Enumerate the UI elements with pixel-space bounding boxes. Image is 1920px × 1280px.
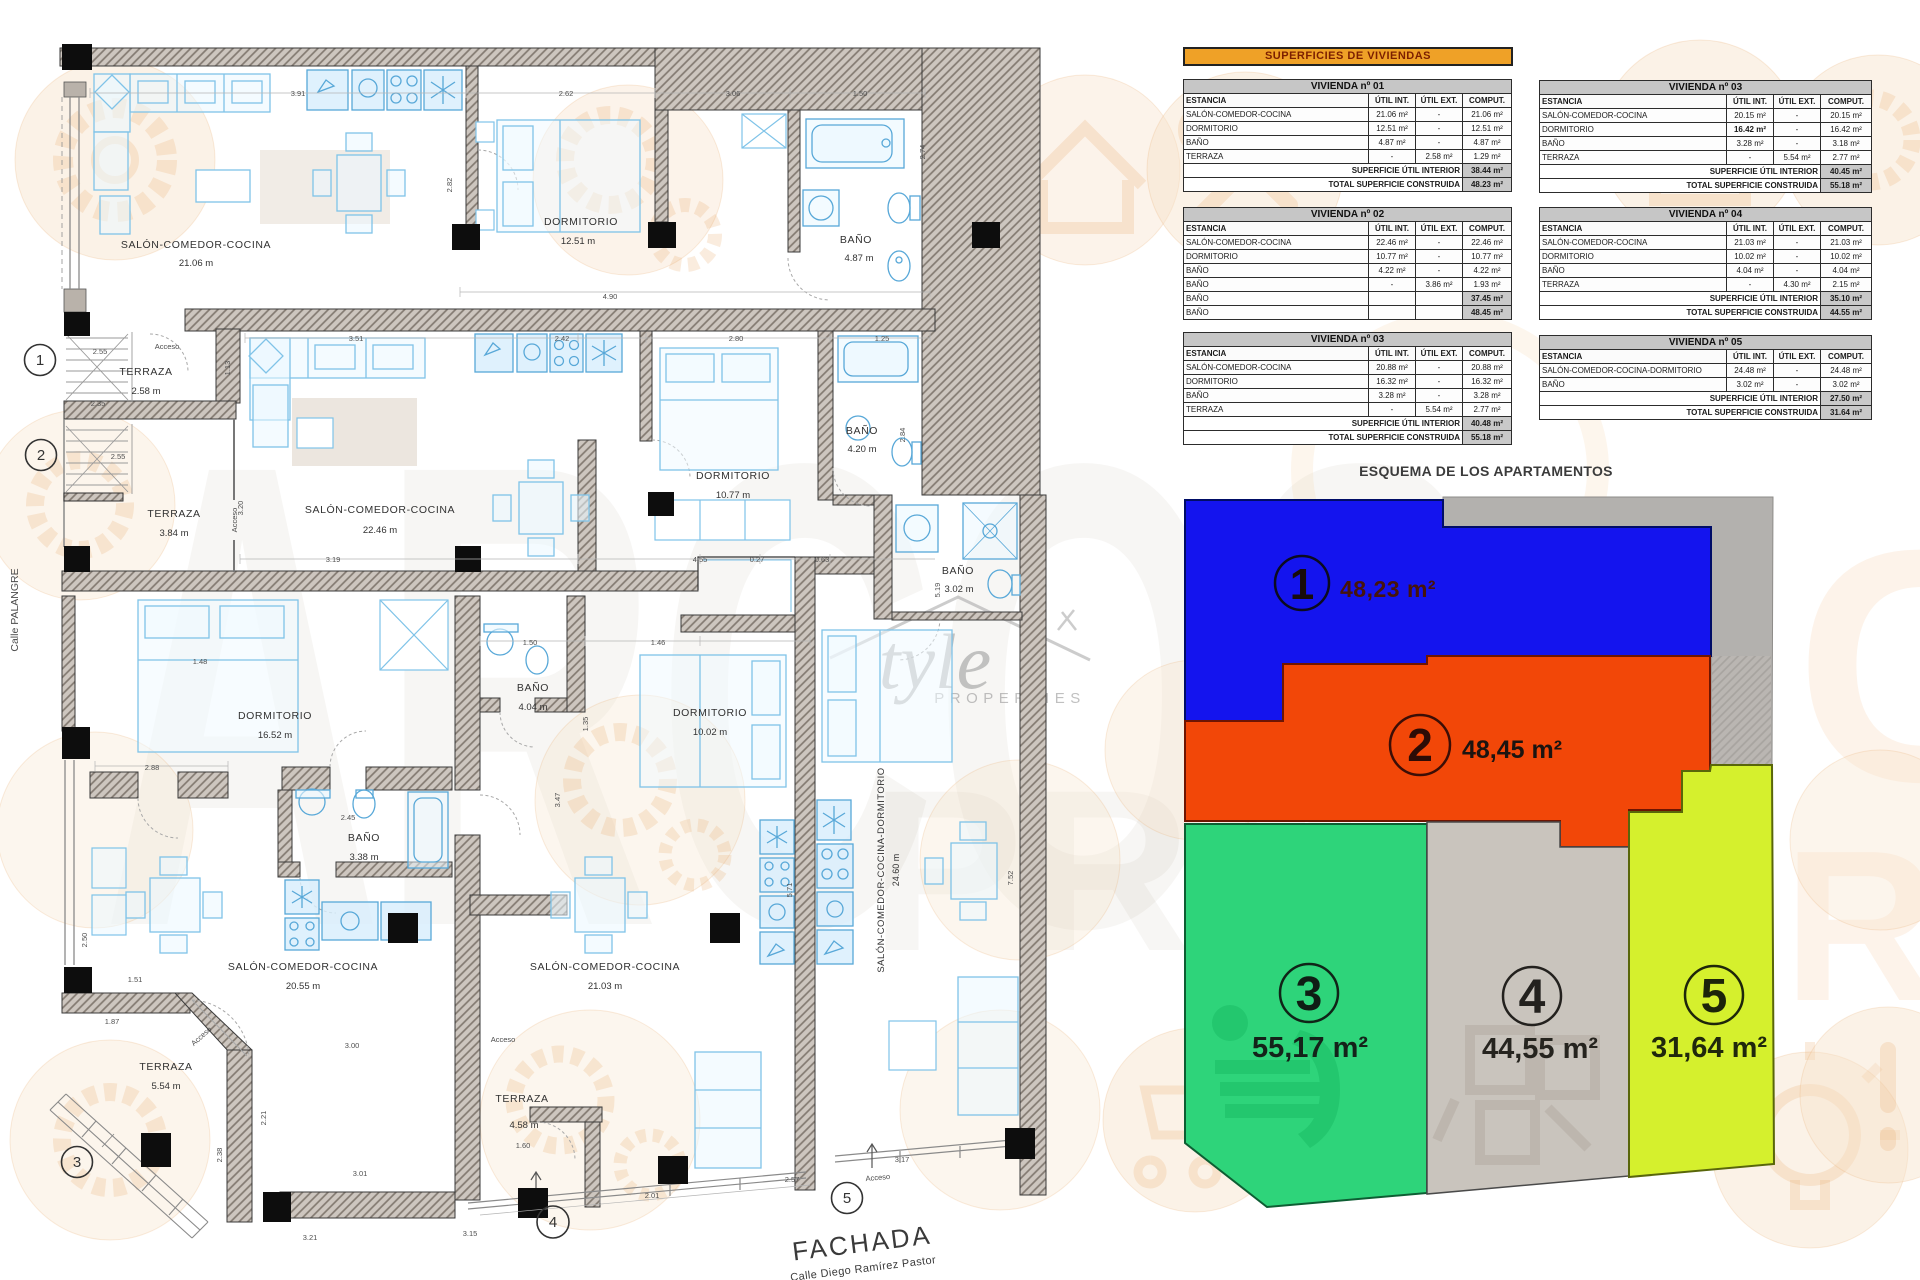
svg-text:21.03 m: 21.03 m xyxy=(588,981,622,992)
svg-text:3: 3 xyxy=(1296,968,1323,1021)
svg-text:44,55 m²: 44,55 m² xyxy=(1482,1033,1598,1065)
svg-text:1.60: 1.60 xyxy=(516,1141,531,1150)
svg-text:BAÑO: BAÑO xyxy=(840,233,872,246)
svg-text:21.06 m: 21.06 m xyxy=(179,258,213,269)
svg-text:Calle PALANGRE: Calle PALANGRE xyxy=(9,568,21,651)
svg-text:16.52 m: 16.52 m xyxy=(258,730,292,741)
svg-text:3.00: 3.00 xyxy=(345,1041,360,1050)
svg-text:1.25: 1.25 xyxy=(875,334,890,343)
svg-text:2.58 m: 2.58 m xyxy=(131,386,160,397)
svg-text:Acceso: Acceso xyxy=(491,1035,516,1044)
svg-text:2.55: 2.55 xyxy=(111,452,126,461)
svg-text:1: 1 xyxy=(1290,560,1314,609)
svg-text:5: 5 xyxy=(843,1190,851,1207)
svg-text:3.02 m: 3.02 m xyxy=(944,584,973,595)
svg-text:TERRAZA: TERRAZA xyxy=(495,1093,548,1105)
svg-text:1.50: 1.50 xyxy=(853,89,868,98)
svg-text:3.01: 3.01 xyxy=(353,1169,368,1178)
svg-text:2.82: 2.82 xyxy=(445,178,454,193)
svg-text:BAÑO: BAÑO xyxy=(846,424,878,437)
svg-text:2.42: 2.42 xyxy=(555,334,570,343)
svg-text:48,23 m²: 48,23 m² xyxy=(1340,576,1436,602)
svg-text:3.15: 3.15 xyxy=(463,1229,478,1238)
svg-text:SALÓN-COMEDOR-COCINA: SALÓN-COMEDOR-COCINA xyxy=(228,960,378,973)
svg-text:2.88: 2.88 xyxy=(145,763,160,772)
svg-text:4: 4 xyxy=(549,1214,557,1231)
svg-text:3.17: 3.17 xyxy=(895,1155,910,1164)
svg-text:4.55: 4.55 xyxy=(693,555,708,564)
svg-text:1.51: 1.51 xyxy=(128,975,143,984)
svg-text:SALÓN-COMEDOR-COCINA: SALÓN-COMEDOR-COCINA xyxy=(121,238,271,251)
svg-text:5.19: 5.19 xyxy=(933,583,942,598)
svg-text:1.87: 1.87 xyxy=(105,1017,120,1026)
svg-text:2.50: 2.50 xyxy=(80,933,89,948)
svg-text:1.50: 1.50 xyxy=(523,638,538,647)
svg-text:3.91: 3.91 xyxy=(291,89,306,98)
svg-text:5.54 m: 5.54 m xyxy=(151,1081,180,1092)
svg-text:2.35: 2.35 xyxy=(91,399,106,408)
svg-text:2.21: 2.21 xyxy=(259,1111,268,1126)
svg-text:BAÑO: BAÑO xyxy=(517,681,549,694)
svg-text:2.57: 2.57 xyxy=(785,1175,800,1184)
svg-text:1.48: 1.48 xyxy=(193,657,208,666)
svg-text:2.01: 2.01 xyxy=(645,1191,660,1200)
svg-text:55,17 m²: 55,17 m² xyxy=(1252,1032,1368,1064)
svg-text:DORMITORIO: DORMITORIO xyxy=(238,710,312,722)
svg-text:3.38 m: 3.38 m xyxy=(349,852,378,863)
svg-text:4.04 m: 4.04 m xyxy=(518,702,547,713)
svg-text:2.38: 2.38 xyxy=(215,1148,224,1163)
svg-text:2.55: 2.55 xyxy=(93,347,108,356)
svg-text:4.58 m: 4.58 m xyxy=(509,1120,538,1131)
svg-text:1.35: 1.35 xyxy=(581,717,590,732)
svg-text:PROPERTIES: PROPERTIES xyxy=(934,690,1085,707)
svg-text:31,64 m²: 31,64 m² xyxy=(1651,1032,1767,1064)
svg-text:2.62: 2.62 xyxy=(559,89,574,98)
svg-text:DORMITORIO: DORMITORIO xyxy=(544,216,618,228)
svg-text:2.84: 2.84 xyxy=(898,428,907,443)
svg-text:5.71: 5.71 xyxy=(785,883,794,898)
svg-text:24.60 m: 24.60 m xyxy=(891,854,901,887)
svg-text:0.27: 0.27 xyxy=(750,555,765,564)
svg-text:4.20 m: 4.20 m xyxy=(847,444,876,455)
svg-text:2.74: 2.74 xyxy=(918,145,927,160)
svg-text:1: 1 xyxy=(36,352,44,369)
svg-text:20.55 m: 20.55 m xyxy=(286,981,320,992)
svg-text:2.80: 2.80 xyxy=(729,334,744,343)
svg-text:7.52: 7.52 xyxy=(1006,871,1015,886)
svg-text:10.02 m: 10.02 m xyxy=(693,727,727,738)
svg-text:2.45: 2.45 xyxy=(341,813,356,822)
svg-text:3.84 m: 3.84 m xyxy=(159,528,188,539)
svg-text:Acceso: Acceso xyxy=(155,342,180,351)
svg-text:DORMITORIO: DORMITORIO xyxy=(673,707,747,719)
svg-text:DORMITORIO: DORMITORIO xyxy=(696,470,770,482)
svg-text:TERRAZA: TERRAZA xyxy=(139,1061,192,1073)
svg-text:3.51: 3.51 xyxy=(349,334,364,343)
svg-text:48,45 m²: 48,45 m² xyxy=(1462,736,1562,764)
svg-text:SALÓN-COMEDOR-COCINA-DORMITORI: SALÓN-COMEDOR-COCINA-DORMITORIO xyxy=(876,767,887,972)
svg-text:BAÑO: BAÑO xyxy=(348,831,380,844)
svg-text:Acceso: Acceso xyxy=(865,1172,890,1183)
svg-text:1.13: 1.13 xyxy=(223,361,232,376)
svg-text:3.21: 3.21 xyxy=(303,1233,318,1242)
svg-text:3.20: 3.20 xyxy=(236,501,245,516)
svg-text:4: 4 xyxy=(1519,971,1546,1024)
svg-text:3: 3 xyxy=(73,1154,81,1171)
svg-text:22.46 m: 22.46 m xyxy=(363,525,397,536)
svg-text:3.06: 3.06 xyxy=(726,89,741,98)
svg-text:ESQUEMA DE LOS APARTAMENTOS: ESQUEMA DE LOS APARTAMENTOS xyxy=(1359,463,1613,479)
svg-text:TERRAZA: TERRAZA xyxy=(119,366,172,378)
svg-text:SALÓN-COMEDOR-COCINA: SALÓN-COMEDOR-COCINA xyxy=(305,503,455,516)
svg-text:2: 2 xyxy=(37,447,45,464)
svg-text:SALÓN-COMEDOR-COCINA: SALÓN-COMEDOR-COCINA xyxy=(530,960,680,973)
svg-text:0.63: 0.63 xyxy=(815,555,830,564)
svg-text:1.46: 1.46 xyxy=(651,638,666,647)
svg-text:5: 5 xyxy=(1701,970,1728,1023)
svg-text:4.90: 4.90 xyxy=(603,292,618,301)
svg-text:4.87 m: 4.87 m xyxy=(844,253,873,264)
svg-text:3.47: 3.47 xyxy=(553,793,562,808)
svg-text:2: 2 xyxy=(1407,719,1433,771)
svg-text:BAÑO: BAÑO xyxy=(942,564,974,577)
svg-text:TERRAZA: TERRAZA xyxy=(147,508,200,520)
svg-text:3.19: 3.19 xyxy=(326,555,341,564)
svg-text:12.51 m: 12.51 m xyxy=(561,236,595,247)
svg-text:10.77 m: 10.77 m xyxy=(716,490,750,501)
